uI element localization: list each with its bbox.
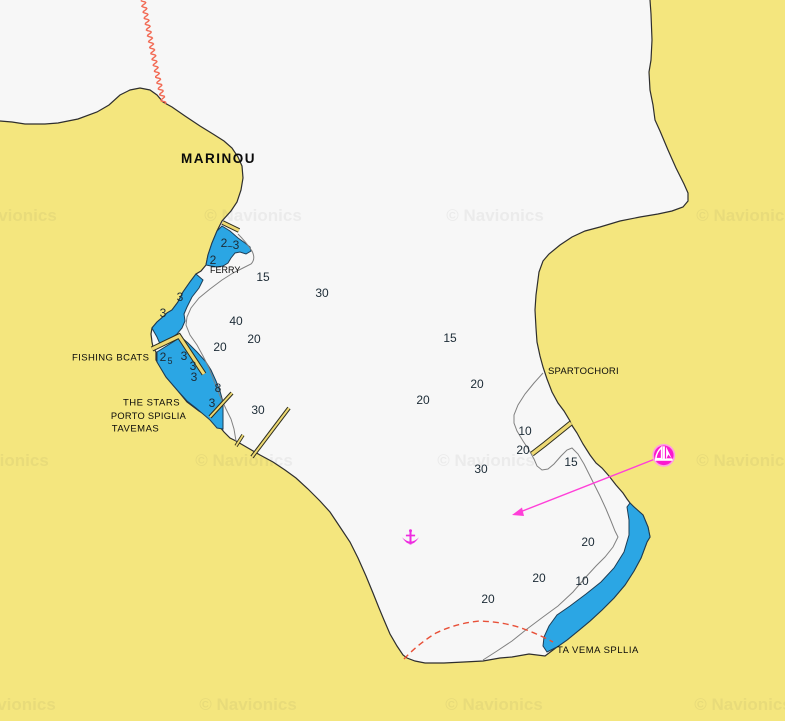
svg-text:© Navionics: © Navionics [199,695,297,714]
svg-text:FISHING BCATS: FISHING BCATS [72,353,149,364]
svg-text:20: 20 [481,592,495,606]
svg-text:15: 15 [256,270,270,284]
svg-text:TAVEMAS: TAVEMAS [112,424,160,435]
svg-text:© Navionics: © Navionics [437,451,535,470]
svg-text:3: 3 [160,306,167,320]
svg-text:15: 15 [564,455,578,469]
svg-text:20: 20 [247,332,261,346]
svg-text:30: 30 [315,286,329,300]
svg-text:20: 20 [532,571,546,585]
svg-text:© Navionics: © Navionics [694,695,785,714]
svg-text:MARINOU: MARINOU [181,151,256,166]
svg-text:© Navionics: © Navionics [445,695,543,714]
svg-text:10: 10 [518,424,532,438]
svg-text:20: 20 [470,377,484,391]
svg-text:© Navionics: © Navionics [696,451,785,470]
svg-text:© Navionics: © Navionics [696,206,785,225]
svg-text:5: 5 [167,356,172,366]
svg-text:SPARTOCHORI: SPARTOCHORI [548,366,619,377]
svg-text:© Navionics: © Navionics [195,451,293,470]
svg-text:© Navionics: © Navionics [204,206,302,225]
svg-text:TA VEMA SPLLIA: TA VEMA SPLLIA [557,645,639,656]
svg-text:3: 3 [233,238,240,252]
svg-text:3: 3 [177,290,184,304]
svg-text:10: 10 [575,574,589,588]
svg-text:© Navionics: © Navionics [446,206,544,225]
svg-text:THE STARS: THE STARS [123,398,180,409]
svg-text:40: 40 [229,314,243,328]
svg-text:© Navionics: © Navionics [0,695,56,714]
svg-text:2: 2 [160,350,167,364]
svg-text:20: 20 [581,535,595,549]
svg-text:PORTO SPIGLIA: PORTO SPIGLIA [111,411,187,421]
svg-text:15: 15 [443,331,457,345]
svg-text:3: 3 [209,396,216,410]
svg-text:30: 30 [251,403,265,417]
svg-text:© Navionics: © Navionics [0,451,49,470]
svg-text:2: 2 [210,253,217,267]
svg-text:20: 20 [416,393,430,407]
svg-text:20: 20 [213,340,227,354]
svg-text:© Navionics: © Navionics [0,206,57,225]
svg-text:3: 3 [191,370,198,384]
svg-text:8: 8 [215,381,222,395]
svg-text:3: 3 [181,349,188,363]
